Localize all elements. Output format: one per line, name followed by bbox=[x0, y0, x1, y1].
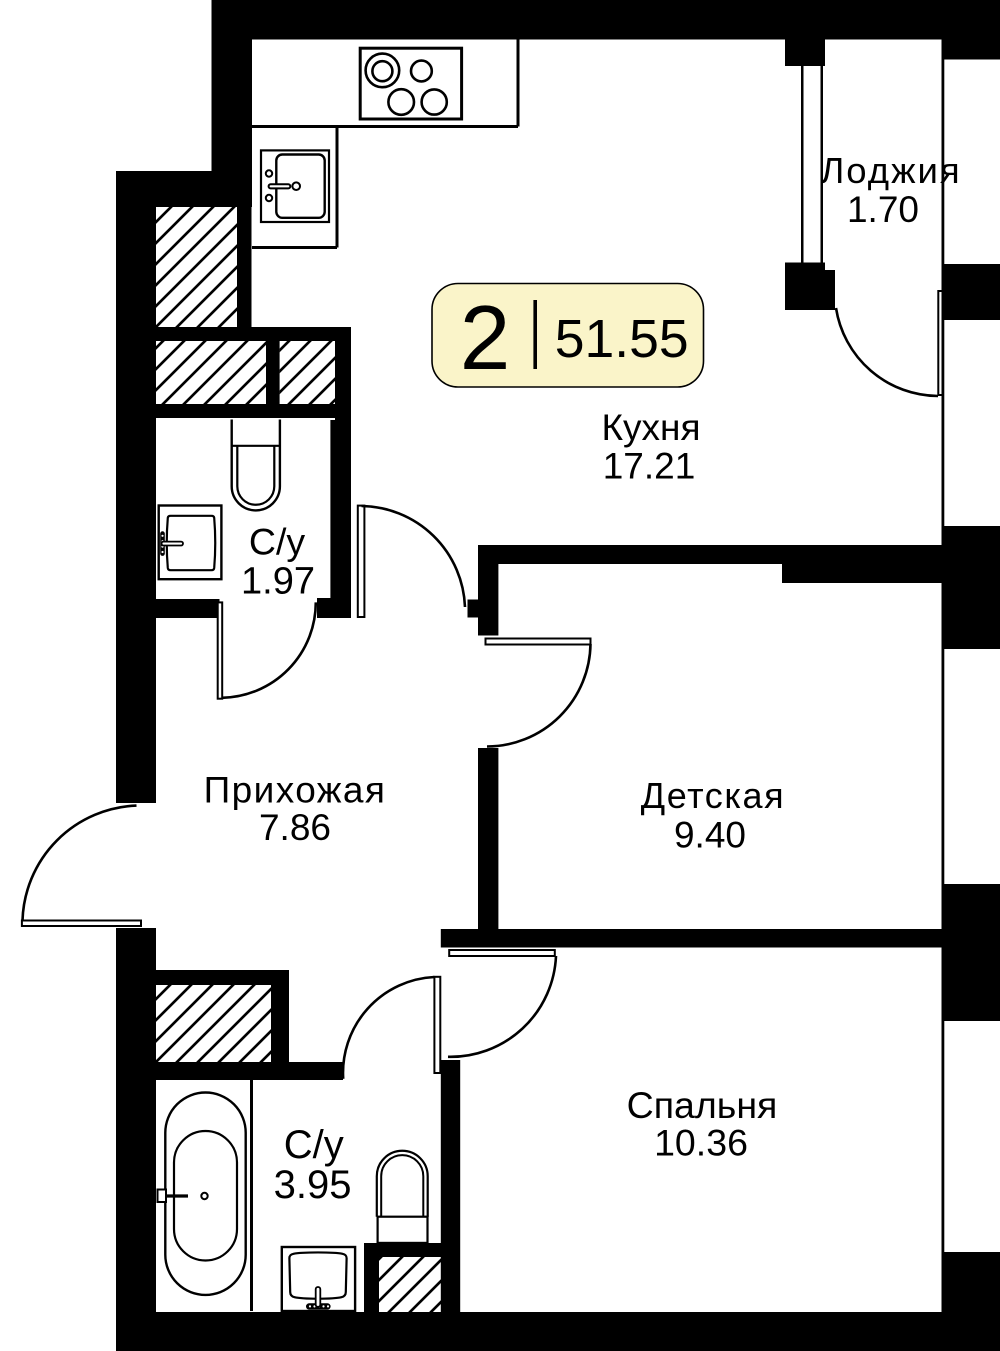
svg-text:17.21: 17.21 bbox=[603, 445, 696, 486]
svg-text:2: 2 bbox=[460, 288, 511, 389]
svg-text:Детская: Детская bbox=[641, 775, 786, 816]
svg-text:9.40: 9.40 bbox=[674, 815, 746, 856]
svg-text:Прихожая: Прихожая bbox=[204, 770, 387, 811]
svg-text:51.55: 51.55 bbox=[555, 310, 689, 369]
svg-text:С/у: С/у bbox=[284, 1123, 344, 1167]
svg-text:Кухня: Кухня bbox=[601, 407, 700, 448]
svg-text:Лоджия: Лоджия bbox=[820, 150, 961, 191]
svg-text:10.36: 10.36 bbox=[654, 1122, 748, 1164]
svg-text:1.97: 1.97 bbox=[241, 561, 315, 603]
svg-text:1.70: 1.70 bbox=[847, 189, 919, 230]
svg-text:С/у: С/у bbox=[249, 521, 306, 563]
svg-text:Спальня: Спальня bbox=[627, 1084, 778, 1126]
svg-text:7.86: 7.86 bbox=[259, 807, 331, 848]
svg-text:3.95: 3.95 bbox=[274, 1163, 352, 1207]
